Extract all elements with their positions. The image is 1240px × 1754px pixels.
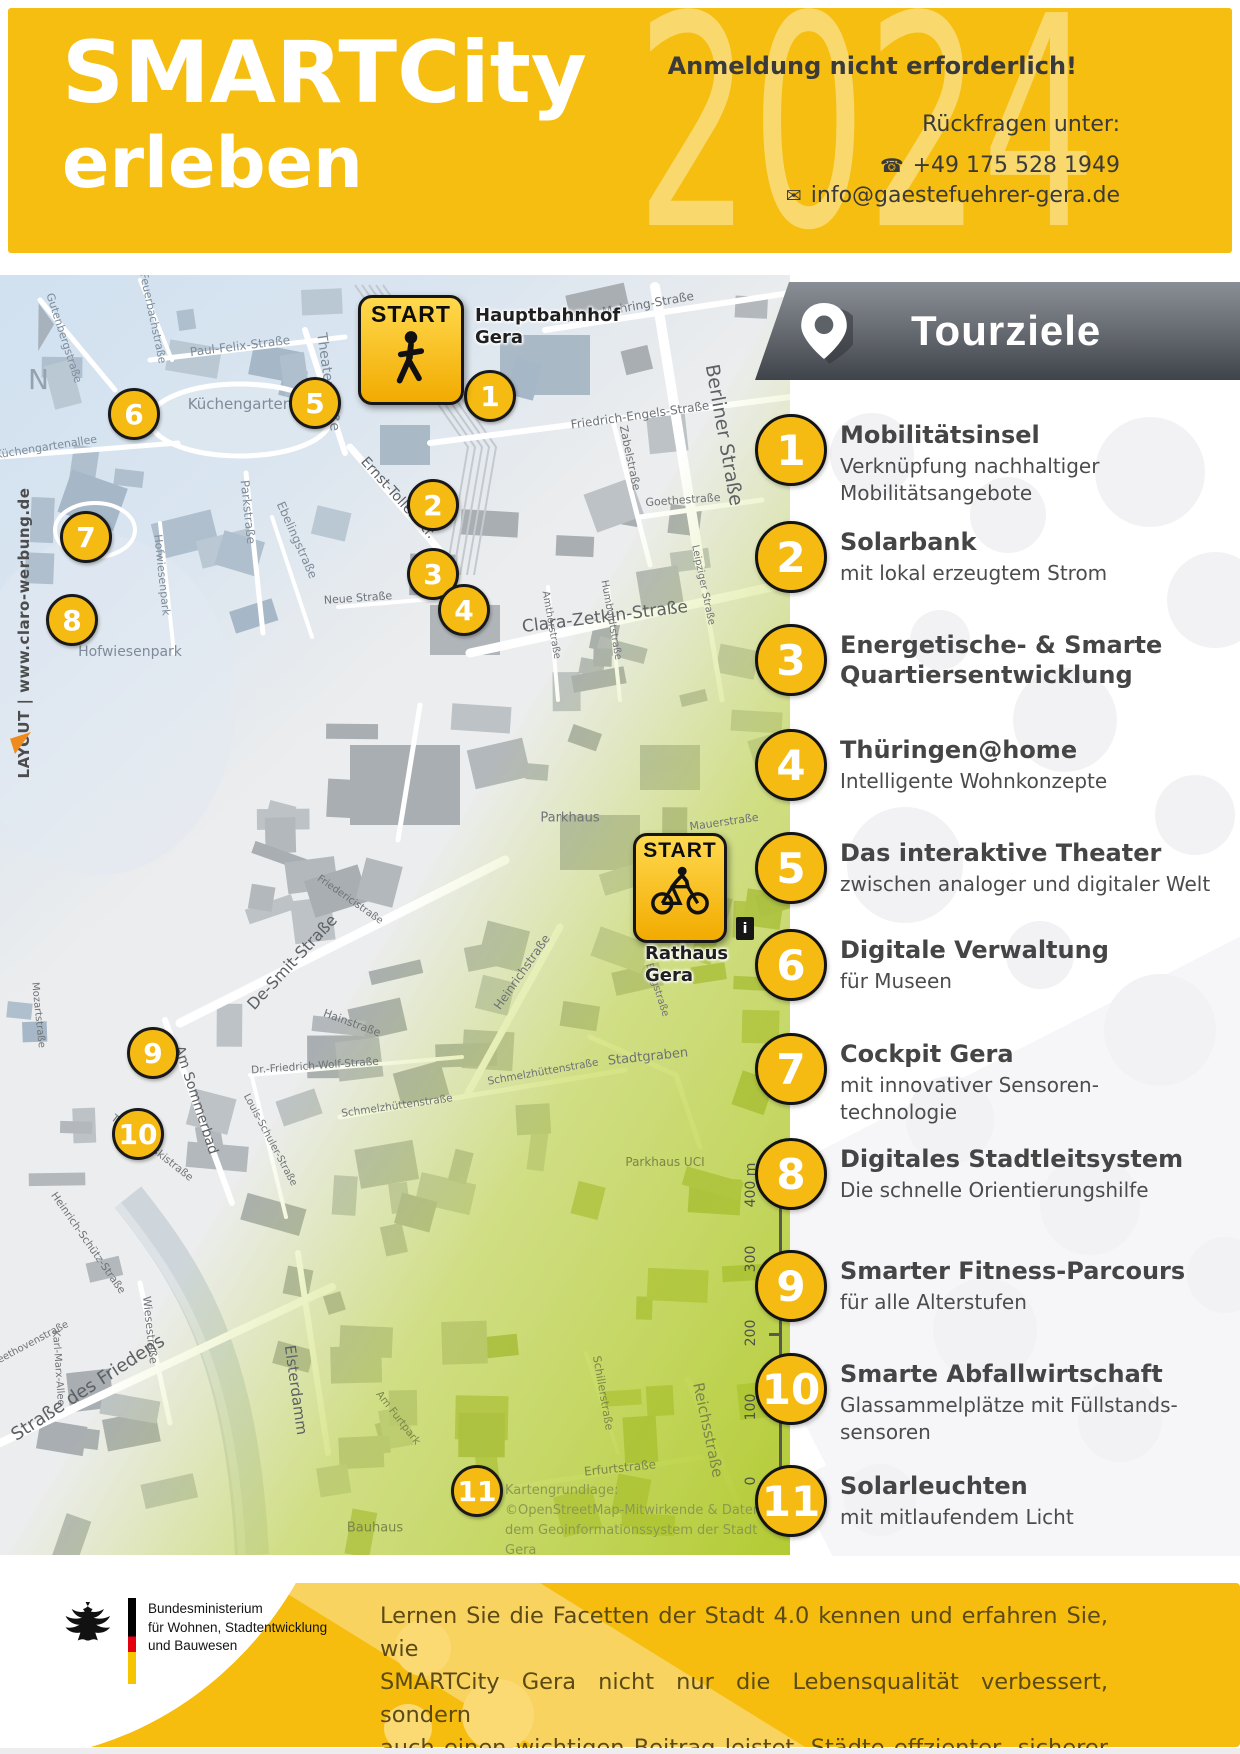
street-label: De-Smit-Straße	[243, 911, 341, 1014]
tour-item-title: Smarter Fitness-Parcours	[840, 1256, 1240, 1286]
street-label: Küchengarten	[188, 395, 293, 413]
street-label: Paul-Felix-Straße	[189, 333, 291, 359]
map-pin-icon	[795, 298, 853, 364]
message-line: Lernen Sie die Facetten der Stadt 4.0 ke…	[380, 1600, 1108, 1666]
tour-item-title: Das interaktive Theater	[840, 838, 1240, 868]
street-label: Am Sommerbad	[171, 1044, 221, 1157]
tour-item-subtitle: Die schnelle Orientierungshilfe	[840, 1177, 1240, 1204]
street-label: Mozartstraße	[29, 982, 47, 1049]
street-label: Berliner Straße	[701, 363, 748, 508]
map-marker-10: 10	[112, 1108, 164, 1160]
tour-item-subtitle: Intelligente Wohnkonzepte	[840, 768, 1240, 795]
email-line: ✉info@gaestefuehrer-gera.de	[786, 181, 1120, 211]
tour-item-title: Solarleuchten	[840, 1471, 1240, 1501]
tour-item-title: Cockpit Gera	[840, 1039, 1240, 1069]
hauptbahnhof-label: Hauptbahnhof Gera	[475, 305, 620, 349]
federal-eagle-icon	[62, 1598, 118, 1648]
tour-item-subtitle: mit lokal erzeugtem Strom	[840, 560, 1240, 587]
header-banner: 2024 SMARTCity erleben Anmeldung nicht e…	[8, 8, 1232, 253]
street-label: Parkhaus UCI	[625, 1155, 704, 1169]
street-label: Parkstraße	[238, 479, 259, 544]
ministry-line: für Wohnen, Stadtentwicklung	[148, 1619, 327, 1638]
scale-bar	[779, 1173, 782, 1489]
map-marker-7: 7	[60, 511, 112, 563]
north-label: N	[28, 363, 49, 396]
street-label: Neue Straße	[323, 589, 392, 607]
ministry-logo: Bundesministerium für Wohnen, Stadtentwi…	[62, 1598, 327, 1684]
start-badge-rathaus: START	[633, 833, 727, 943]
tour-item-number-badge: 4	[755, 729, 827, 801]
map-attribution: Kartengrundlage: ©OpenStreetMap-Mitwirke…	[505, 1481, 790, 1555]
street-label: Schmelzhüttenstraße	[341, 1092, 454, 1120]
phone-line: ☎+49 175 528 1949	[786, 151, 1120, 181]
street-label: Ebelingstraße	[274, 499, 320, 580]
street-label: Bauhaus	[347, 1521, 403, 1536]
street-label: Am Furtpark	[373, 1389, 422, 1447]
scale-label: 0	[743, 1477, 759, 1486]
map-marker-11: 11	[451, 1465, 503, 1517]
page-bottom-line	[0, 1748, 1240, 1754]
envelope-icon: ✉	[786, 185, 802, 207]
street-label: Feuerbachstraße	[137, 275, 169, 365]
tour-item-number-badge: 2	[755, 521, 827, 593]
street-label: Hainstraße	[322, 1007, 383, 1040]
footer: Bundesministerium für Wohnen, Stadtentwi…	[0, 1556, 1240, 1754]
street-label: Heinrich-Schütz-Straße	[48, 1190, 127, 1296]
tour-item-subtitle: mit innovativer Sensoren- technologie	[840, 1072, 1240, 1126]
city-map: N LAYOUT | www.claro-werbung.de START Ha…	[0, 275, 790, 1555]
ministry-line: Bundesministerium	[148, 1600, 327, 1619]
tour-item-subtitle: für alle Alterstufen	[840, 1289, 1240, 1316]
tour-item-number-badge: 1	[755, 414, 827, 486]
tour-item-title: Digitale Verwaltung	[840, 935, 1240, 965]
scale-label: 300	[743, 1246, 759, 1273]
contact-block: Rückfragen unter: ☎+49 175 528 1949 ✉inf…	[786, 110, 1120, 211]
info-point-icon: i	[736, 917, 754, 940]
tour-item-subtitle: zwischen analoger und digitaler Welt	[840, 871, 1240, 898]
street-label: Mauerstraße	[689, 811, 760, 834]
contact-label: Rückfragen unter:	[786, 110, 1120, 139]
ministry-name: Bundesministerium für Wohnen, Stadtentwi…	[148, 1598, 327, 1656]
no-registration-note: Anmeldung nicht erforderlich!	[668, 52, 1077, 80]
scale-tick	[769, 1333, 780, 1336]
tour-item-number-badge: 7	[755, 1033, 827, 1105]
street-label: Karl-Marx-Allee	[50, 1330, 66, 1406]
tourziele-heading: Tourziele	[911, 307, 1101, 355]
map-marker-1: 1	[464, 370, 516, 422]
phone-number: +49 175 528 1949	[913, 153, 1120, 178]
start-badge-hauptbahnhof: START	[358, 295, 464, 405]
map-marker-4: 4	[438, 584, 490, 636]
map-marker-6: 6	[108, 388, 160, 440]
phone-icon: ☎	[880, 155, 904, 177]
tour-item-number-badge: 10	[755, 1353, 827, 1425]
street-label: Leipziger Straße	[689, 544, 717, 626]
street-label: Reichsstraße	[689, 1381, 727, 1479]
tour-item-title: Smarte Abfallwirtschaft	[840, 1359, 1240, 1389]
compass: N	[18, 297, 70, 365]
tour-item-number-badge: 11	[755, 1465, 827, 1537]
street-label: Hofwiesenpark	[151, 534, 172, 617]
pedestrian-icon	[386, 328, 436, 390]
tour-item-number-badge: 6	[755, 929, 827, 1001]
map-marker-2: 2	[407, 479, 459, 531]
street-label: Zabelstraße	[617, 424, 643, 491]
tour-item-title: Energetische- & Smarte Quartiersentwickl…	[840, 630, 1240, 690]
street-label: Küchengartenallee	[0, 433, 98, 462]
tour-item-number-badge: 3	[755, 624, 827, 696]
ministry-line: und Bauwesen	[148, 1637, 327, 1656]
footer-message: Lernen Sie die Facetten der Stadt 4.0 ke…	[380, 1600, 1108, 1754]
poster-subtitle: erleben	[62, 128, 363, 198]
tour-item-subtitle: Verknüpfung nachhaltiger Mobilitätsangeb…	[840, 453, 1240, 507]
street-label: Heinrichstraße	[491, 932, 553, 1012]
street-label: Parkhaus	[540, 811, 599, 826]
tour-item-number-badge: 8	[755, 1138, 827, 1210]
tour-item-number-badge: 5	[755, 832, 827, 904]
tour-item-subtitle: Glassammelplätze mit Füllstands- sensore…	[840, 1392, 1240, 1446]
street-label: Louis-Schuler-Straße	[241, 1092, 299, 1188]
street-label: Friedrich-Engels-Straße	[570, 398, 710, 431]
attribution-line: ©OpenStreetMap-Mitwirkende & Daten aus	[505, 1501, 790, 1521]
street-label: Elsterdamm	[281, 1344, 311, 1436]
email-address: info@gaestefuehrer-gera.de	[811, 183, 1120, 208]
street-label: Schillerstraße	[590, 1355, 616, 1432]
poster-title: SMARTCity	[62, 30, 587, 116]
street-label: Dr.-Friedrich-Wolf-Straße	[251, 1056, 379, 1077]
tour-item-title: Digitales Stadtleitsystem	[840, 1144, 1240, 1174]
north-arrow-icon	[18, 297, 70, 361]
tourziele-banner: Tourziele	[755, 282, 1240, 380]
map-marker-9: 9	[127, 1027, 179, 1079]
street-label: Stadtgraben	[607, 1045, 689, 1068]
tour-item-title: Thüringen@home	[840, 735, 1240, 765]
street-label: Goethestraße	[645, 491, 721, 509]
tour-item-title: Mobilitätsinsel	[840, 420, 1240, 450]
flag-stripe	[128, 1598, 136, 1684]
map-marker-8: 8	[46, 594, 98, 646]
street-label: Erfurtstraße	[583, 1457, 656, 1478]
attribution-line: dem Geoinformationssystem der Stadt Gera	[505, 1521, 790, 1555]
tour-item-title: Solarbank	[840, 527, 1240, 557]
tour-item-number-badge: 9	[755, 1250, 827, 1322]
start-label: START	[643, 839, 716, 863]
map-marker-5: 5	[289, 377, 341, 429]
message-line: SMARTCity Gera nicht nur die Lebensquali…	[380, 1666, 1108, 1732]
rathaus-label: Rathaus Gera	[645, 943, 728, 987]
tour-item-subtitle: für Museen	[840, 968, 1240, 995]
start-label: START	[371, 301, 451, 328]
street-label: Hofwiesenpark	[78, 644, 182, 660]
scale-label: 200	[743, 1320, 759, 1347]
tour-item-subtitle: mit mitlaufendem Licht	[840, 1504, 1240, 1531]
street-label: Schmelzhüttenstraße	[487, 1056, 600, 1087]
cyclist-icon	[649, 863, 711, 917]
